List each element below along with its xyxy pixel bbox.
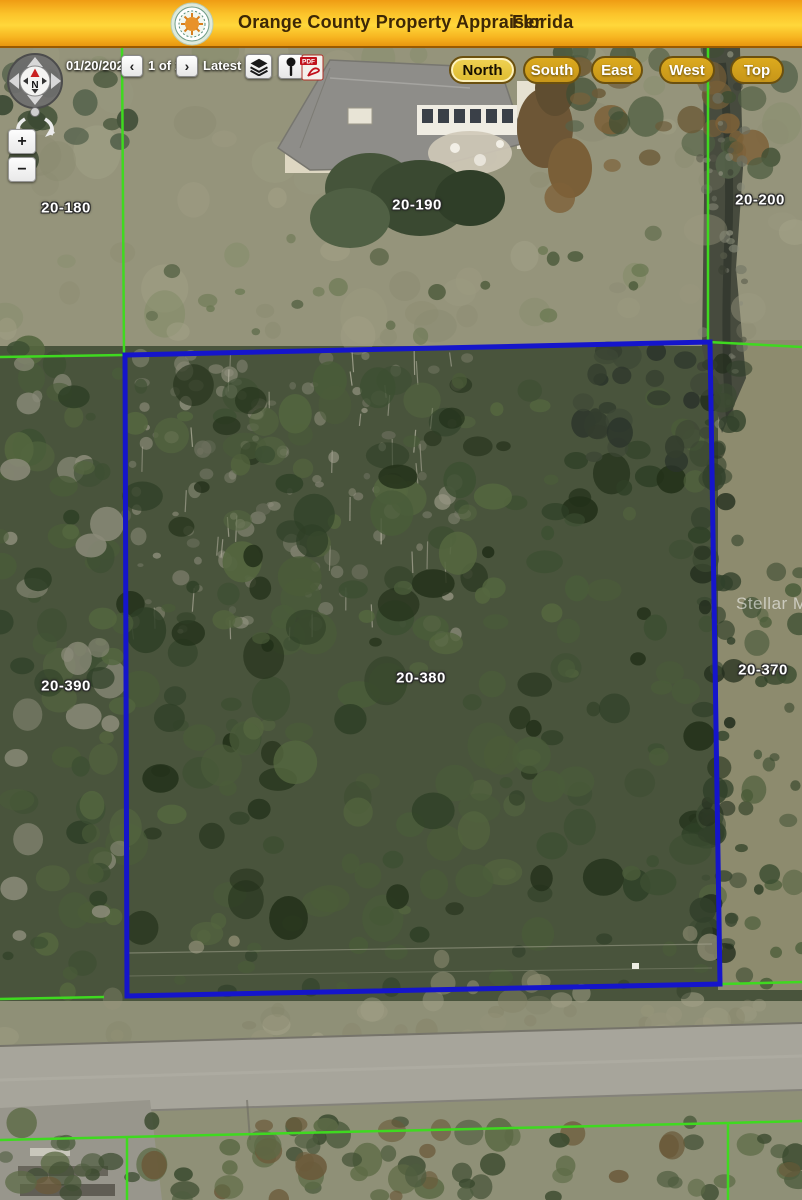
view-east-button[interactable]: East xyxy=(591,56,643,84)
parcel-label[interactable]: 20-190 xyxy=(392,197,442,214)
svg-text:PDF: PDF xyxy=(302,59,315,66)
county-seal-icon xyxy=(170,1,214,47)
header: Orange County Property Appraiser Florida xyxy=(0,0,802,48)
parcel-label[interactable]: 20-390 xyxy=(41,678,91,695)
layers-button[interactable] xyxy=(245,54,272,79)
view-top-button[interactable]: Top xyxy=(730,56,784,84)
app-region: Florida xyxy=(512,12,573,33)
app-title: Orange County Property Appraiser xyxy=(238,12,542,33)
parcel-label[interactable]: 20-200 xyxy=(735,192,785,209)
app-window: 20-180 20-190 20-200 20-390 20-380 20-37… xyxy=(0,0,802,1200)
compass-knob[interactable] xyxy=(31,108,40,117)
zoom-out-button[interactable]: − xyxy=(8,157,36,182)
zoom-in-button[interactable]: + xyxy=(8,129,36,154)
parcel-label[interactable]: 20-370 xyxy=(738,662,788,679)
pin-icon xyxy=(284,57,298,77)
aerial-imagery xyxy=(0,48,802,1200)
watermark: Stellar MLS xyxy=(736,594,802,614)
view-south-button[interactable]: South xyxy=(523,56,581,84)
parcel-label[interactable]: 20-180 xyxy=(41,200,91,217)
prev-image-button[interactable]: ‹ xyxy=(121,55,143,77)
pdf-export-button[interactable]: PDF xyxy=(300,54,324,81)
next-image-button[interactable]: › xyxy=(176,55,198,77)
view-north-button[interactable]: North xyxy=(449,56,516,84)
pdf-icon: PDF xyxy=(300,54,324,81)
aerial-map[interactable]: 20-180 20-190 20-200 20-390 20-380 20-37… xyxy=(0,48,802,1200)
rotate-right-icon[interactable] xyxy=(45,119,55,137)
parcel-label[interactable]: 20-380 xyxy=(396,670,446,687)
layers-icon xyxy=(249,57,269,76)
imagery-year-label: Latest xyxy=(203,58,241,73)
view-west-button[interactable]: West xyxy=(659,56,715,84)
